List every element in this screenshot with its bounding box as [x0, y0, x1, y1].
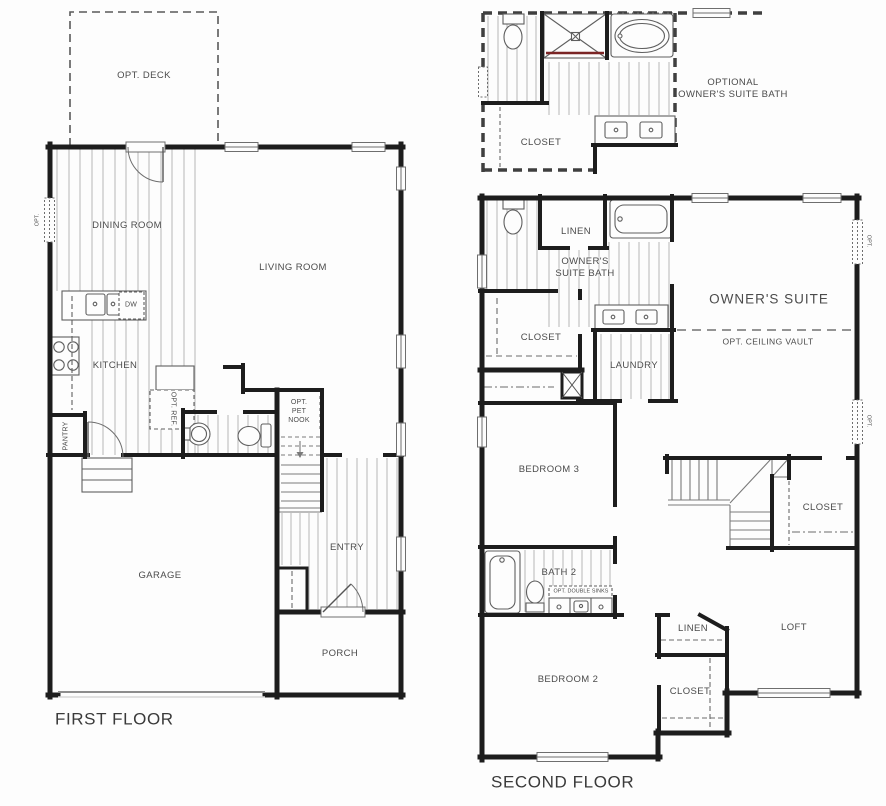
- room-label-stair-closet: CLOSET: [803, 502, 843, 514]
- tub-faucet-icon: [618, 34, 622, 38]
- sink-drain-icon: [614, 128, 618, 132]
- front-door-threshold: [321, 607, 365, 617]
- room-label-owners-closet: CLOSET: [521, 332, 561, 344]
- powder-toilet-tank: [261, 424, 271, 447]
- sink-drain-icon: [649, 128, 653, 132]
- burner-icon: [68, 360, 78, 370]
- inset-toilet-tank: [503, 14, 524, 24]
- counter-return: [156, 366, 194, 390]
- inset-title-line2: OWNER'S SUITE BATH: [678, 89, 788, 101]
- room-label-dining-room: DINING ROOM: [92, 220, 162, 232]
- first-floor-title: FIRST FLOOR: [55, 708, 174, 729]
- room-label-kitchen: KITCHEN: [93, 360, 138, 372]
- floor-plan-page: OPT. DECK DINING ROOM LIVING ROOM KITCHE…: [0, 0, 886, 806]
- room-label-opt-deck: OPT. DECK: [117, 70, 171, 82]
- room-label-bedroom2-closet: CLOSET: [670, 686, 710, 698]
- room-label-linen-lower: LINEN: [678, 623, 708, 635]
- bath2-tub-inner: [490, 556, 515, 609]
- floor-plan-drawing: [0, 0, 886, 806]
- room-label-linen-upper: LINEN: [561, 226, 591, 238]
- burner-icon: [68, 342, 78, 352]
- second-floor-title: SECOND FLOOR: [491, 771, 634, 792]
- room-label-bedroom-2: BEDROOM 2: [538, 674, 599, 686]
- toilet-bowl: [504, 210, 522, 234]
- room-label-owners-suite: OWNER'S SUITE: [709, 292, 829, 309]
- label-opt-ref: OPT. REF.: [168, 392, 177, 426]
- burner-icon: [54, 342, 64, 352]
- room-label-bedroom-3: BEDROOM 3: [519, 464, 580, 476]
- opt-sink-mark: [557, 605, 561, 609]
- powder-sink-bowl: [192, 427, 207, 442]
- room-label-inset-closet: CLOSET: [521, 137, 561, 149]
- sink-drain-icon: [579, 604, 582, 607]
- label-dishwasher: DW: [125, 302, 137, 311]
- plan-background: [0, 0, 886, 806]
- inset-title-line1: OPTIONAL: [678, 77, 788, 89]
- inset-toilet-bowl: [504, 25, 522, 49]
- room-label-garage: GARAGE: [138, 570, 181, 582]
- room-label-owners-suite-bath: OWNER'S SUITE BATH: [554, 256, 616, 280]
- chase-box: [562, 372, 582, 398]
- sink-drain-icon: [111, 302, 115, 306]
- burner-icon: [54, 360, 64, 370]
- room-label-porch: PORCH: [322, 648, 358, 660]
- garage-steps: [82, 458, 132, 492]
- label-opt-pet-nook: OPT. PET NOOK: [287, 399, 311, 425]
- label-opt-double-sinks: OPT. DOUBLE SINKS: [553, 589, 608, 596]
- sink-drain-icon: [644, 315, 648, 319]
- room-label-entry: ENTRY: [330, 542, 364, 554]
- label-opt-window-upper: OPT.: [865, 235, 872, 247]
- room-label-laundry: LAUNDRY: [610, 360, 658, 372]
- powder-toilet-bowl: [238, 427, 260, 446]
- room-label-pantry: PANTRY: [63, 422, 72, 451]
- inset-tub-oval-inner: [620, 24, 665, 49]
- inset-opt-window: [479, 67, 488, 97]
- room-label-living-room: LIVING ROOM: [259, 262, 327, 274]
- owners-tub-inner: [615, 205, 667, 233]
- room-label-bath-2: BATH 2: [542, 567, 577, 579]
- deck-door-threshold: [126, 142, 165, 152]
- tub-faucet-icon: [500, 558, 504, 562]
- label-opt-window-lower: OPT.: [865, 415, 872, 427]
- room-label-loft: LOFT: [781, 622, 807, 634]
- sink-drain-icon: [611, 315, 615, 319]
- sink-drain-icon: [93, 302, 97, 306]
- tub-faucet-icon: [618, 217, 622, 221]
- label-opt-window-ff: OPT.: [35, 214, 42, 226]
- bath2-toilet-bowl: [527, 581, 544, 603]
- bath2-toilet-tank: [526, 603, 544, 612]
- opt-sink-mark: [599, 605, 603, 609]
- inset-title: OPTIONAL OWNER'S SUITE BATH: [678, 77, 788, 101]
- label-opt-ceiling-vault: OPT. CEILING VAULT: [723, 337, 814, 348]
